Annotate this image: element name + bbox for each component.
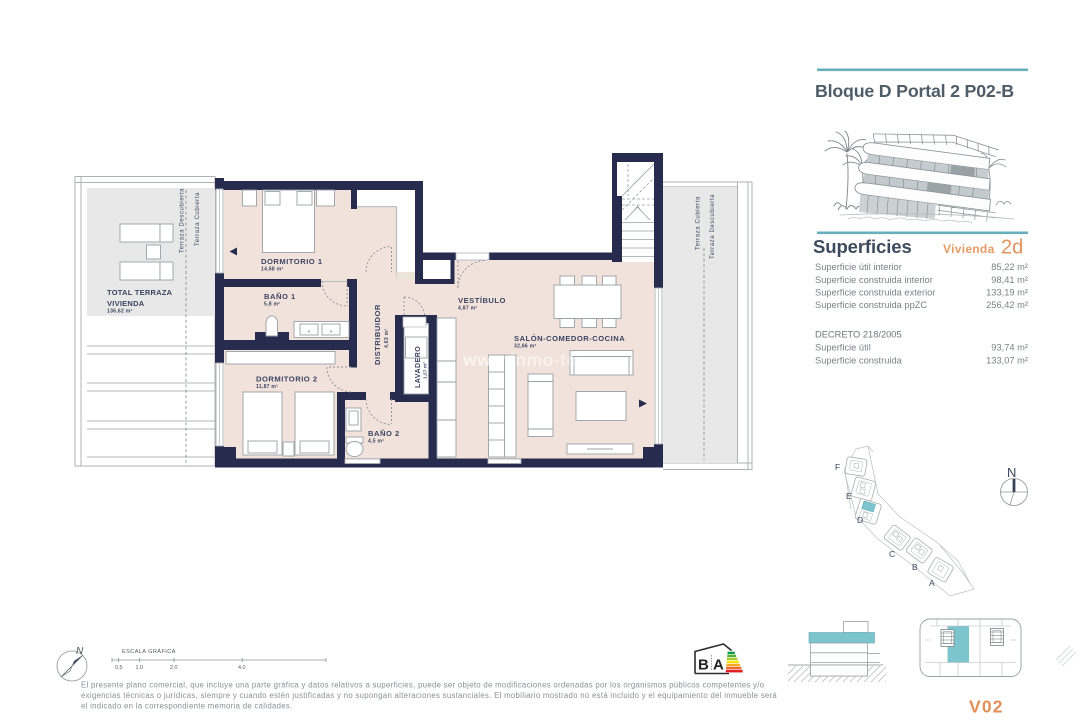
svg-text:32,66 m²: 32,66 m²: [514, 344, 536, 350]
svg-text:Superficie útil interior: Superficie útil interior: [815, 262, 902, 272]
svg-text:4,63 m²: 4,63 m²: [384, 329, 390, 348]
svg-text:133,07 m²: 133,07 m²: [986, 356, 1028, 366]
svg-text:1,57 m²: 1,57 m²: [423, 362, 428, 379]
svg-text:11,87 m²: 11,87 m²: [256, 384, 278, 390]
svg-text:B: B: [912, 562, 918, 572]
svg-text:TOTAL TERRAZA: TOTAL TERRAZA: [107, 288, 173, 297]
svg-text:2d: 2d: [1001, 237, 1023, 259]
svg-text:5,8 m²: 5,8 m²: [264, 302, 280, 308]
svg-text:F: F: [835, 462, 840, 472]
svg-text:4,87 m²: 4,87 m²: [458, 306, 477, 312]
svg-text:Vivienda: Vivienda: [943, 242, 995, 256]
svg-text:256,42 m²: 256,42 m²: [986, 300, 1028, 310]
svg-text:BAÑO 2: BAÑO 2: [368, 429, 400, 438]
svg-text:VESTÍBULO: VESTÍBULO: [458, 296, 506, 305]
svg-text:93,74 m²: 93,74 m²: [991, 343, 1028, 353]
svg-text:Superficie construida exterior: Superficie construida exterior: [815, 288, 935, 298]
svg-text:exigencias técnicas o jurídica: exigencias técnicas o jurídicas, siempre…: [81, 691, 777, 700]
svg-text:B: B: [698, 657, 709, 674]
svg-text:DISTRIBUIDOR: DISTRIBUIDOR: [373, 304, 382, 365]
svg-text:Superficie construida: Superficie construida: [815, 356, 903, 366]
svg-text:SALÓN-COMEDOR-COCINA: SALÓN-COMEDOR-COCINA: [514, 334, 625, 343]
svg-text:E: E: [846, 491, 852, 501]
svg-text:DORMITORIO 1: DORMITORIO 1: [261, 257, 323, 266]
svg-text:N: N: [76, 646, 84, 657]
svg-text:ESCALA GRÁFICA: ESCALA GRÁFICA: [122, 648, 176, 655]
svg-text:Terraza Descubierta: Terraza Descubierta: [180, 188, 186, 253]
svg-text:Bloque D Portal 2 P02-B: Bloque D Portal 2 P02-B: [815, 81, 1014, 101]
svg-text:0.5: 0.5: [115, 665, 123, 671]
svg-text:133,19 m²: 133,19 m²: [986, 288, 1028, 298]
svg-text:A: A: [713, 657, 724, 674]
svg-text:136,62 m²: 136,62 m²: [107, 309, 133, 315]
svg-text:N: N: [1007, 465, 1016, 480]
svg-text:DORMITORIO 2: DORMITORIO 2: [256, 375, 318, 384]
svg-text:Superficies: Superficies: [813, 236, 912, 257]
svg-text:98,41 m²: 98,41 m²: [991, 275, 1028, 285]
svg-text:14,68 m²: 14,68 m²: [261, 267, 283, 273]
svg-text:4.0: 4.0: [238, 665, 246, 671]
svg-text:Terraza Cubierta: Terraza Cubierta: [696, 196, 702, 250]
svg-text:www.inmo-tor: www.inmo-tor: [462, 350, 585, 370]
svg-text:El presente plano comercial, q: El presente plano comercial, que incluye…: [81, 681, 765, 690]
svg-text:Superficie construida ppZC: Superficie construida ppZC: [815, 300, 927, 310]
svg-text:4,5 m²: 4,5 m²: [368, 439, 384, 445]
svg-text:2.0: 2.0: [170, 665, 178, 671]
svg-text:el indicado en la correspondie: el indicado en la correspondiente memori…: [81, 702, 293, 711]
svg-text:V02: V02: [969, 697, 1004, 717]
svg-text:BAÑO 1: BAÑO 1: [264, 292, 296, 301]
svg-text:Terraza Cubierta: Terraza Cubierta: [195, 192, 201, 246]
svg-text:A: A: [929, 578, 935, 588]
svg-text:VIVIENDA: VIVIENDA: [107, 299, 145, 308]
svg-text:C: C: [889, 549, 895, 559]
svg-text:Terraza Descubierta: Terraza Descubierta: [710, 194, 716, 259]
svg-text:D: D: [857, 515, 863, 525]
svg-text:DECRETO 218/2005: DECRETO 218/2005: [815, 330, 902, 340]
svg-text:85,22 m²: 85,22 m²: [991, 262, 1028, 272]
svg-text:LAVADERO: LAVADERO: [415, 346, 422, 388]
svg-text:Superficie construida interior: Superficie construida interior: [815, 275, 933, 285]
svg-text:Superficie útil: Superficie útil: [815, 343, 871, 353]
svg-text:1.0: 1.0: [136, 665, 144, 671]
